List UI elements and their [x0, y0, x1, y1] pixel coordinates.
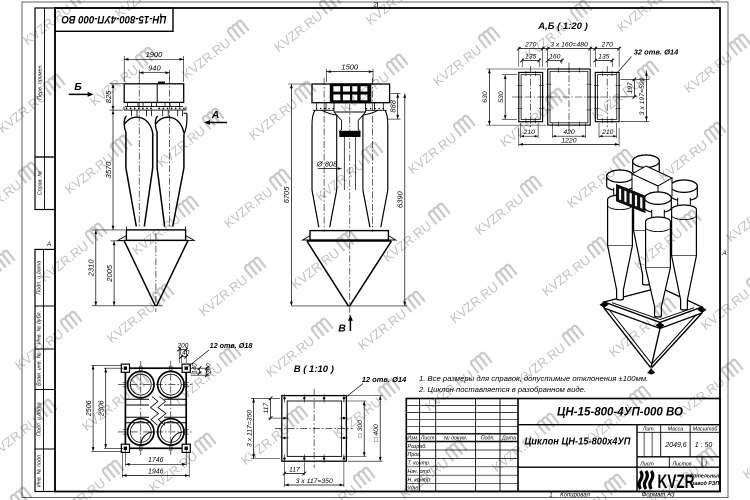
svg-text:630: 630	[482, 91, 489, 103]
svg-text:Масса: Масса	[668, 427, 684, 433]
svg-text:117: 117	[263, 403, 270, 414]
svg-text:2049,6: 2049,6	[664, 442, 687, 449]
svg-text:Инв. № подл.: Инв. № подл.	[37, 454, 43, 487]
svg-text:Пров.: Пров.	[408, 452, 422, 458]
svg-text:Б: Б	[74, 81, 82, 93]
svg-text:940: 940	[148, 64, 161, 73]
svg-text:1: 1	[549, 493, 552, 499]
svg-text:Подп.: Подп.	[481, 436, 495, 442]
svg-text:530: 530	[498, 91, 505, 103]
svg-text:Лист: Лист	[420, 436, 435, 442]
svg-text:Справ. №: Справ. №	[38, 171, 44, 196]
svg-text:6390: 6390	[396, 191, 405, 209]
svg-text:1220: 1220	[561, 137, 576, 144]
svg-text:135: 135	[598, 54, 610, 61]
svg-text:Копировал: Копировал	[560, 493, 590, 499]
svg-text:В ( 1:10 ): В ( 1:10 )	[294, 364, 334, 375]
svg-text:А: А	[46, 241, 51, 248]
svg-text:210: 210	[601, 129, 614, 136]
svg-text:200: 200	[177, 342, 189, 349]
svg-text:В: В	[338, 323, 346, 335]
svg-text:12 отв. Ø14: 12 отв. Ø14	[362, 375, 407, 384]
svg-text:888: 888	[389, 99, 398, 112]
svg-text:завод РЭП: завод РЭП	[692, 481, 720, 487]
svg-text:□ 400: □ 400	[373, 424, 380, 442]
svg-text:140: 140	[179, 350, 190, 357]
svg-text:140: 140	[192, 363, 199, 374]
svg-text:3 х 197=590: 3 х 197=590	[639, 77, 646, 115]
svg-text:Дата: Дата	[501, 436, 516, 442]
svg-text:2005: 2005	[105, 264, 114, 283]
svg-text:32 отв. Ø14: 32 отв. Ø14	[634, 48, 679, 57]
svg-text:3 х 117=350: 3 х 117=350	[246, 410, 253, 447]
svg-text:Лит.: Лит.	[642, 427, 655, 433]
svg-text:420: 420	[563, 129, 575, 136]
svg-text:Масштаб: Масштаб	[693, 427, 719, 433]
svg-text:ЦН-15-800-4УП-000 ВО: ЦН-15-800-4УП-000 ВО	[61, 13, 166, 25]
svg-text:Ø 808: Ø 808	[316, 159, 338, 168]
svg-text:А: А	[721, 250, 726, 257]
svg-text:6705: 6705	[282, 186, 291, 204]
svg-text:3 х 117=350: 3 х 117=350	[296, 478, 333, 485]
svg-text:117: 117	[289, 466, 300, 473]
svg-text:Изм.: Изм.	[407, 436, 418, 442]
svg-text:Лист: Лист	[639, 461, 654, 467]
svg-text:1746: 1746	[148, 457, 164, 464]
svg-text:Разраб.: Разраб.	[408, 444, 427, 450]
svg-text:160: 160	[549, 54, 561, 61]
svg-text:1500: 1500	[341, 62, 359, 71]
svg-text:270: 270	[601, 42, 614, 49]
svg-text:2310: 2310	[87, 259, 96, 278]
